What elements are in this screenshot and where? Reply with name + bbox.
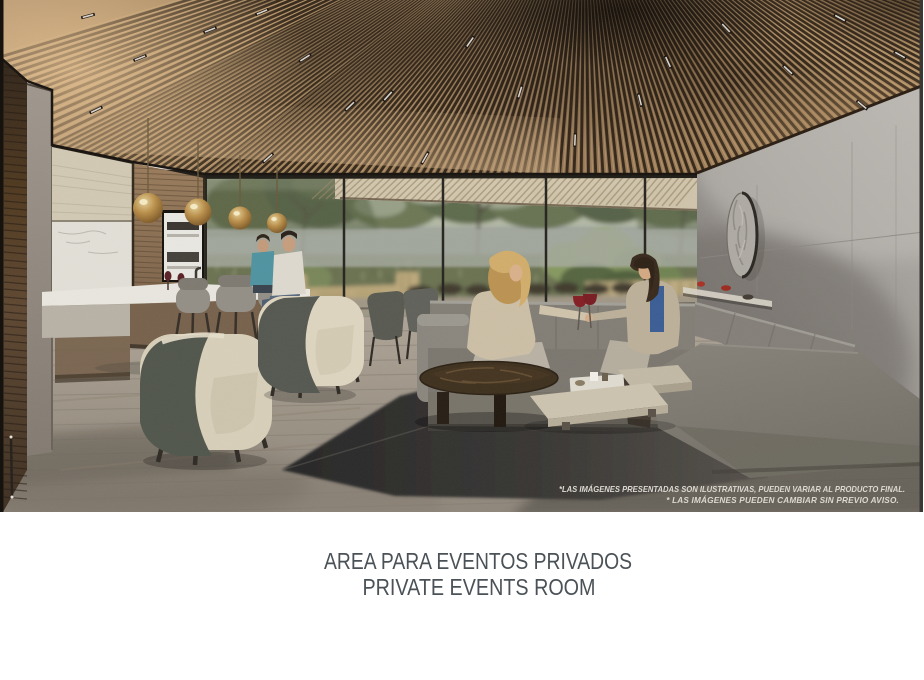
- svg-text:PRIVATE EVENTS ROOM: PRIVATE EVENTS ROOM: [363, 574, 596, 600]
- svg-text:AREA PARA EVENTOS PRIVADOS: AREA PARA EVENTOS PRIVADOS: [324, 548, 632, 574]
